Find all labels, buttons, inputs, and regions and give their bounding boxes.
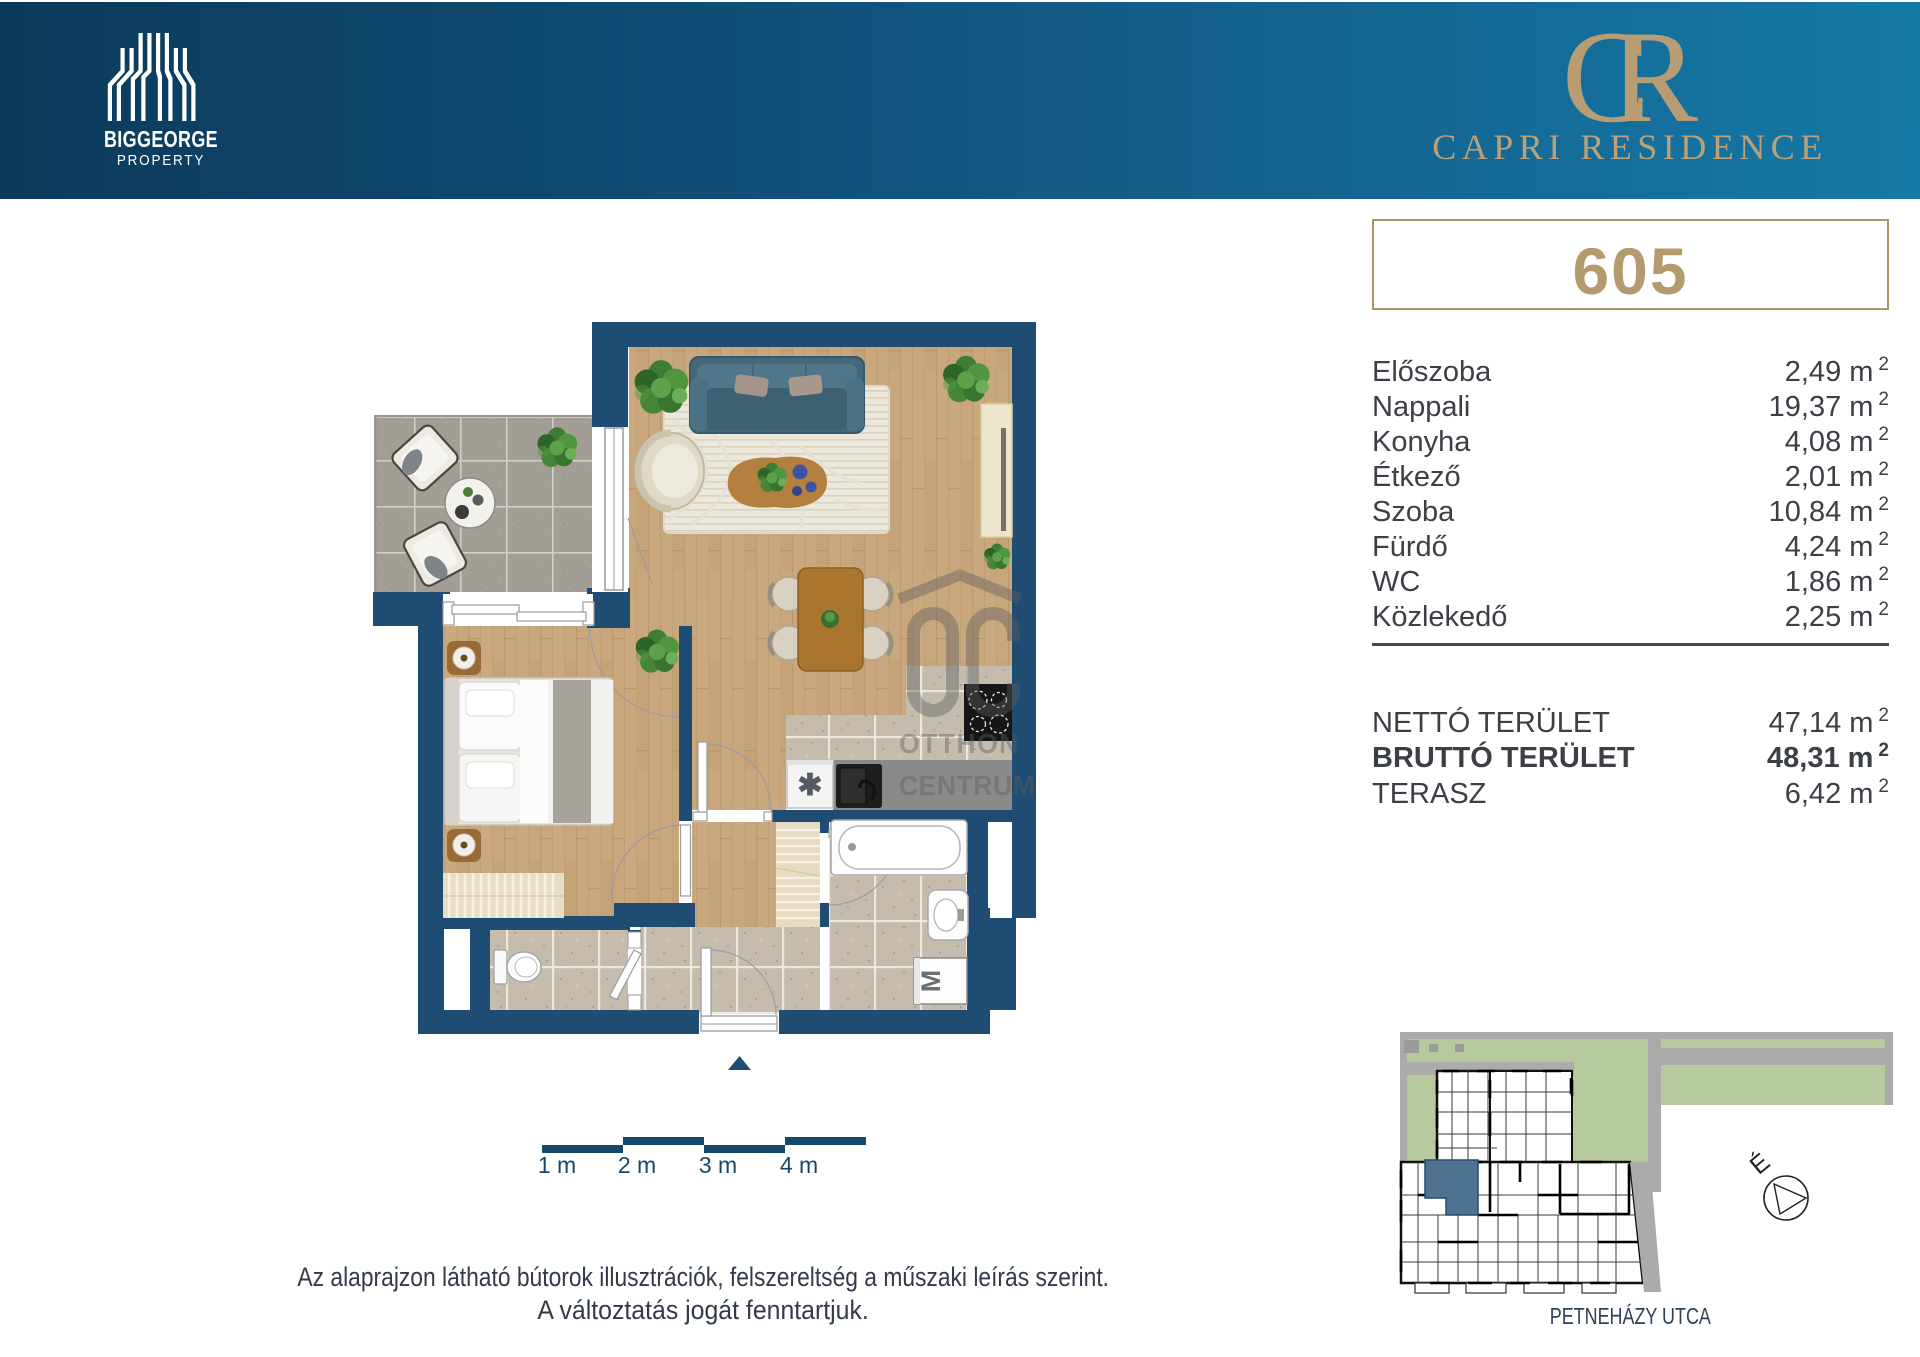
svg-text:1 m: 1 m [538, 1152, 576, 1178]
svg-text:É: É [1744, 1147, 1775, 1180]
svg-text:3 m: 3 m [699, 1152, 737, 1178]
svg-text:4 m: 4 m [780, 1152, 818, 1178]
svg-text:✱: ✱ [797, 769, 822, 802]
svg-text:OTTHON: OTTHON [899, 727, 1020, 759]
svg-text:CENTRUM: CENTRUM [899, 769, 1035, 801]
svg-text:M: M [916, 970, 946, 993]
svg-text:2 m: 2 m [618, 1152, 656, 1178]
